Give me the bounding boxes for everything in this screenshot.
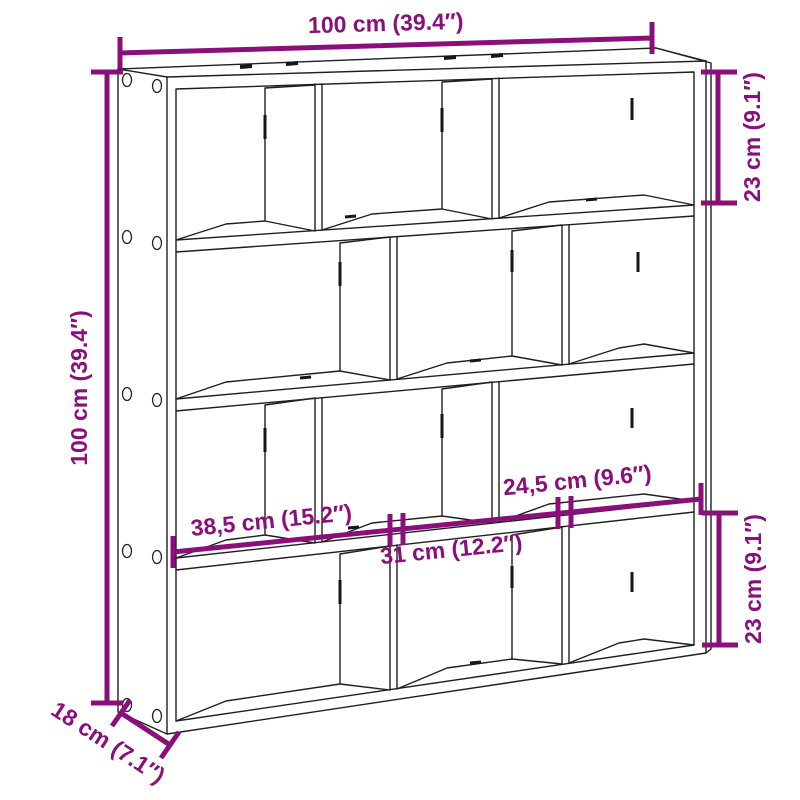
screw-hole — [153, 551, 162, 564]
top-edge-bracket-marks — [240, 55, 503, 67]
dim-line-right-bottom-compartment — [702, 513, 738, 645]
screw-hole — [153, 237, 162, 250]
screw-hole — [123, 74, 132, 87]
row2-dividers — [176, 225, 694, 399]
screw-holes — [123, 74, 162, 723]
screw-hole — [123, 545, 132, 558]
interior-frame — [176, 72, 694, 721]
screw-hole — [153, 80, 162, 93]
front-frame-outline — [167, 61, 706, 734]
screw-hole — [123, 231, 132, 244]
screw-hole — [123, 388, 132, 401]
shelf-line-art — [118, 48, 711, 734]
dim-label-right-bottom-compartment-height: 23 cm (9.1″) — [740, 514, 766, 644]
dim-label-depth: 18 cm (7.1″) — [47, 696, 170, 789]
dim-label-compartment-width-small: 24,5 cm (9.6″) — [502, 460, 653, 501]
screw-hole — [153, 394, 162, 407]
dim-label-left-height: 100 cm (39.4″) — [66, 310, 92, 466]
row1-dividers — [176, 78, 694, 240]
screw-hole — [153, 710, 162, 723]
shelf-peg-marks — [300, 199, 597, 663]
diagram-stage: 100 cm (39.4″) 100 cm (39.4″) 23 cm (9.1… — [0, 0, 800, 800]
shelf-dimension-diagram: 100 cm (39.4″) 100 cm (39.4″) 23 cm (9.1… — [0, 0, 800, 800]
mounting-marks — [240, 55, 638, 663]
dim-label-top-width: 100 cm (39.4″) — [308, 8, 464, 38]
dim-label-right-top-compartment-height: 23 cm (9.1″) — [739, 72, 765, 202]
